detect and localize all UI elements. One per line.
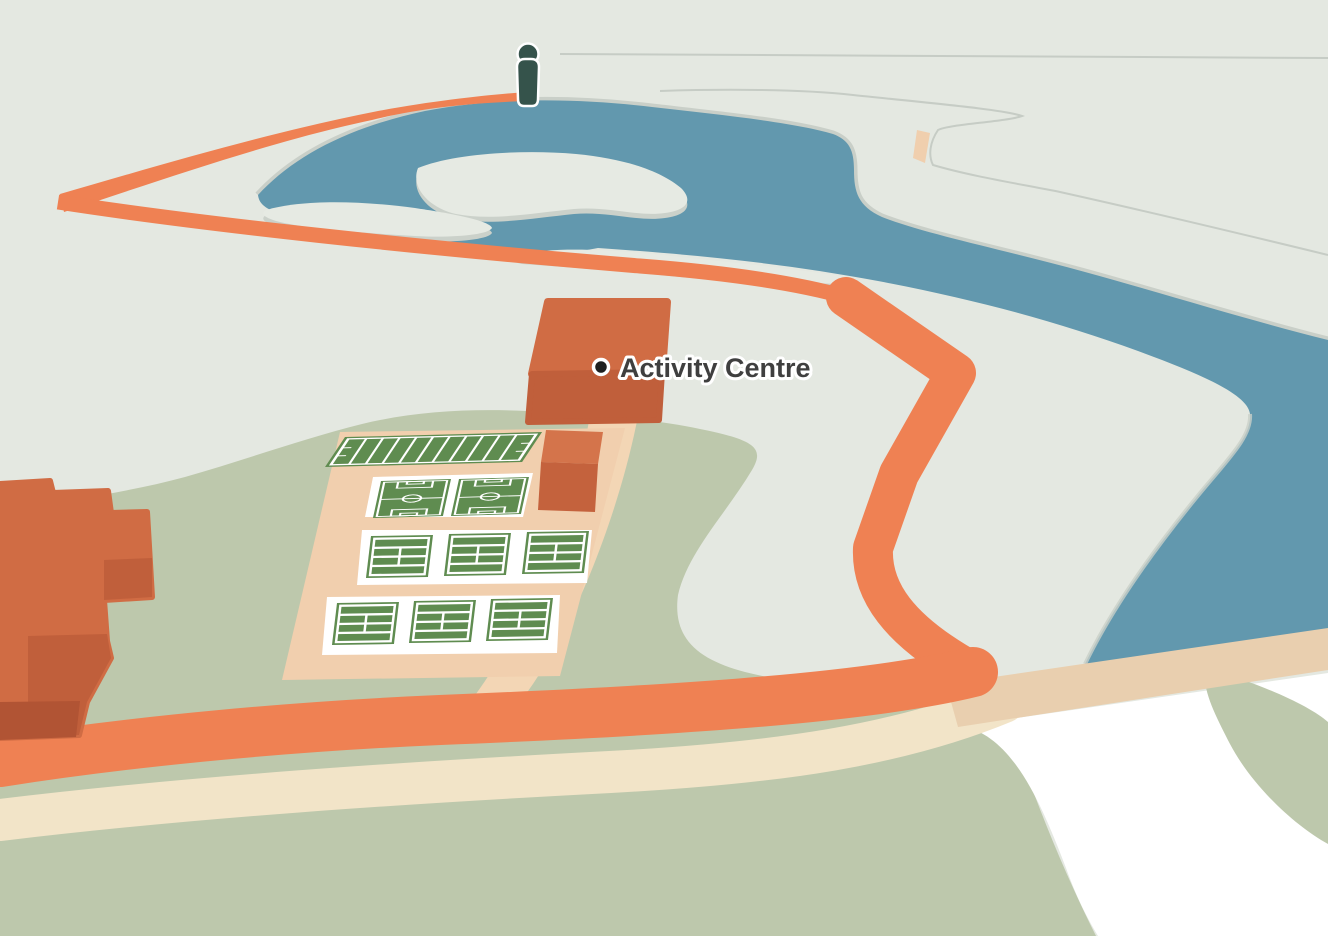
tennis-court <box>366 535 433 578</box>
person-marker[interactable] <box>517 44 539 107</box>
tennis-court <box>522 531 589 574</box>
athletics-field <box>325 432 542 467</box>
map-viewport[interactable]: Activity Centre <box>0 0 1328 936</box>
west-buildings-shadow-face <box>0 701 80 740</box>
tennis-court <box>486 598 553 641</box>
poi-dot[interactable] <box>594 360 609 375</box>
football-pitch <box>451 477 529 516</box>
football-pitch <box>373 479 451 518</box>
poi-marker[interactable]: Activity Centre <box>594 353 811 383</box>
tennis-court <box>409 600 476 643</box>
poi-label[interactable]: Activity Centre <box>620 353 811 383</box>
west-buildings-side-face <box>104 558 152 600</box>
person-icon-body <box>517 59 539 106</box>
tennis-court <box>444 533 511 576</box>
small-building <box>538 430 603 512</box>
park-map-canvas[interactable]: Activity Centre <box>0 0 1328 936</box>
tennis-court <box>332 602 399 645</box>
